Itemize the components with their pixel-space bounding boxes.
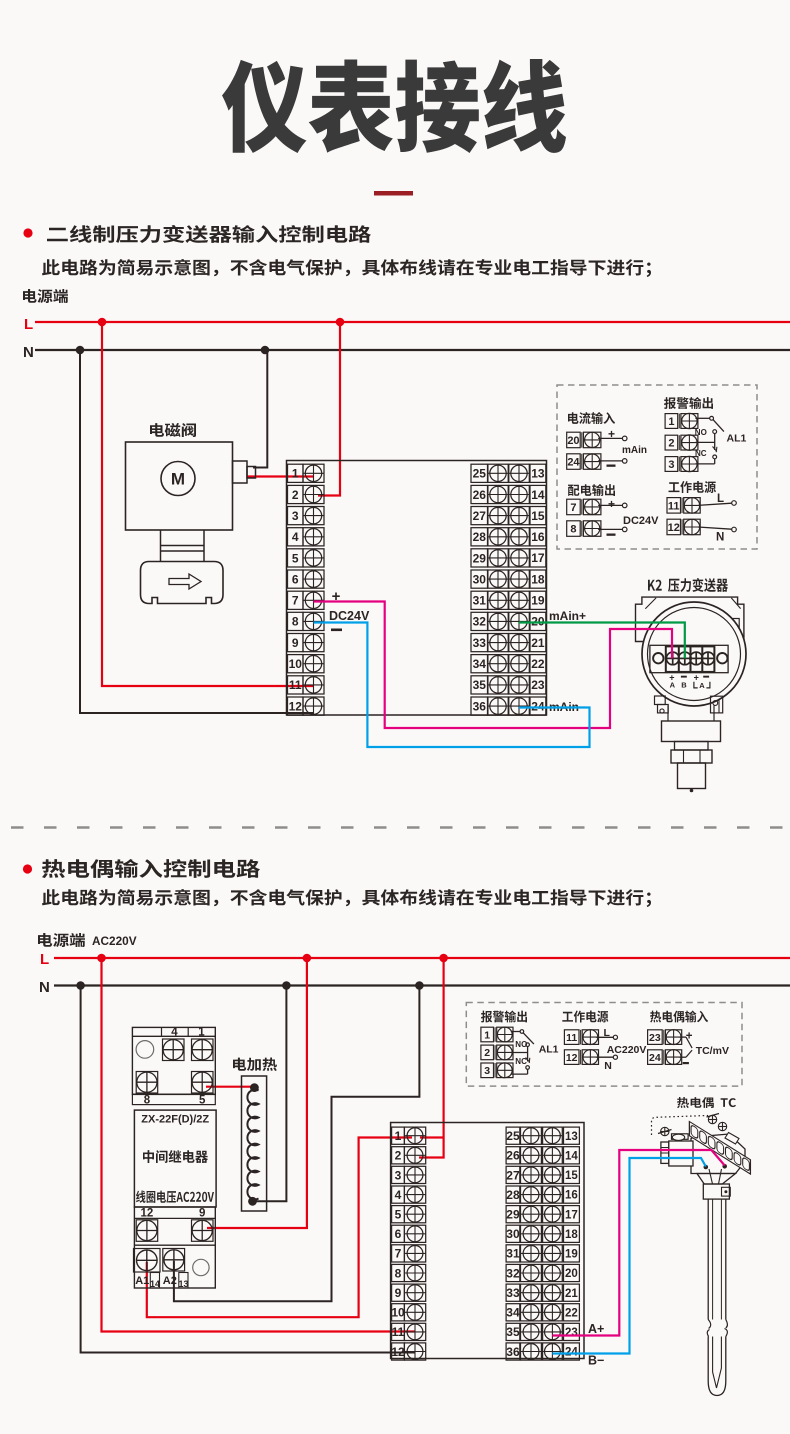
svg-text:L: L (24, 316, 33, 333)
svg-text:11: 11 (566, 1032, 577, 1044)
svg-text:19: 19 (531, 594, 545, 608)
svg-text:20: 20 (567, 435, 579, 447)
svg-text:36: 36 (506, 1345, 520, 1359)
svg-text:2: 2 (484, 1047, 490, 1059)
svg-text:AC220V: AC220V (607, 1044, 647, 1056)
svg-text:2: 2 (395, 1149, 402, 1163)
svg-text:15: 15 (565, 1170, 578, 1182)
svg-text:DC24V: DC24V (329, 609, 370, 623)
svg-text:14: 14 (531, 488, 545, 502)
svg-text:33: 33 (506, 1286, 520, 1300)
svg-text:8: 8 (570, 524, 576, 536)
svg-text:31: 31 (473, 594, 487, 608)
svg-text:29: 29 (506, 1208, 520, 1222)
svg-text:L: L (604, 1027, 611, 1039)
svg-text:34: 34 (506, 1306, 520, 1320)
svg-text:B: B (681, 680, 687, 689)
svg-text:4: 4 (292, 530, 299, 544)
svg-text:15: 15 (531, 509, 545, 523)
svg-text:N: N (23, 344, 34, 361)
svg-text:A: A (670, 680, 676, 689)
svg-text:16: 16 (531, 530, 545, 544)
svg-text:1: 1 (484, 1029, 490, 1041)
svg-text:N: N (39, 979, 50, 996)
svg-text:12: 12 (391, 1345, 405, 1359)
svg-text:30: 30 (473, 572, 487, 586)
svg-text:26: 26 (506, 1149, 520, 1163)
svg-text:9: 9 (292, 636, 299, 650)
svg-text:27: 27 (506, 1168, 520, 1182)
svg-text:8: 8 (395, 1266, 402, 1280)
svg-text:NC: NC (695, 449, 707, 458)
svg-text:2: 2 (668, 438, 674, 450)
svg-text:31: 31 (506, 1247, 520, 1261)
svg-text:12: 12 (566, 1052, 578, 1064)
svg-text:17: 17 (531, 551, 545, 565)
svg-text:28: 28 (473, 530, 487, 544)
svg-text:20: 20 (565, 1268, 578, 1280)
svg-text:5: 5 (199, 1095, 206, 1107)
svg-text:10: 10 (391, 1306, 405, 1320)
svg-text:4: 4 (171, 1026, 178, 1038)
svg-text:4: 4 (395, 1188, 402, 1202)
svg-text:3: 3 (292, 509, 299, 523)
svg-text:L: L (40, 951, 49, 968)
svg-text:28: 28 (506, 1188, 520, 1202)
svg-text:33: 33 (473, 636, 487, 650)
svg-text:21: 21 (565, 1288, 578, 1300)
svg-text:+: + (608, 427, 615, 441)
svg-text:12: 12 (668, 522, 680, 534)
svg-text:1: 1 (395, 1129, 402, 1143)
svg-text:24: 24 (567, 457, 580, 469)
svg-text:13: 13 (565, 1131, 578, 1143)
svg-text:19: 19 (565, 1249, 578, 1261)
svg-text:35: 35 (506, 1325, 520, 1339)
svg-text:5: 5 (395, 1208, 402, 1222)
svg-text:12: 12 (141, 1207, 154, 1219)
svg-text:7: 7 (395, 1247, 402, 1261)
svg-text:3: 3 (484, 1065, 490, 1077)
svg-text:AC220V: AC220V (92, 934, 137, 948)
svg-text:11: 11 (392, 1325, 405, 1339)
svg-text:NO: NO (695, 428, 707, 437)
svg-text:A: A (699, 681, 705, 690)
svg-text:L: L (717, 493, 724, 505)
svg-text:14: 14 (565, 1150, 578, 1162)
svg-text:9: 9 (199, 1207, 205, 1219)
svg-text:22: 22 (531, 657, 545, 671)
svg-text:mAin+: mAin+ (549, 609, 586, 623)
svg-text:AL1: AL1 (539, 1044, 559, 1056)
svg-text:6: 6 (395, 1227, 402, 1241)
svg-text:11: 11 (668, 500, 680, 512)
svg-text:26: 26 (473, 488, 487, 502)
svg-text:TC/mV: TC/mV (696, 1045, 729, 1057)
svg-text:1: 1 (292, 467, 299, 481)
svg-text:B−: B− (588, 1354, 604, 1368)
svg-text:NC: NC (515, 1057, 527, 1066)
svg-text:25: 25 (473, 467, 487, 481)
svg-text:24: 24 (649, 1052, 661, 1064)
svg-text:7: 7 (570, 502, 576, 514)
svg-text:5: 5 (292, 551, 299, 565)
svg-text:N: N (604, 1060, 612, 1072)
svg-text:ZX-22F(D)/2Z: ZX-22F(D)/2Z (141, 1114, 209, 1126)
svg-text:DC24V: DC24V (623, 515, 659, 527)
svg-text:+: + (686, 1030, 693, 1042)
svg-text:10: 10 (289, 657, 303, 671)
svg-text:3: 3 (668, 459, 674, 471)
svg-text:23: 23 (649, 1032, 661, 1044)
svg-text:8: 8 (144, 1095, 151, 1107)
svg-text:7: 7 (292, 594, 299, 608)
svg-text:1: 1 (198, 1026, 205, 1038)
svg-text:22: 22 (565, 1307, 578, 1319)
svg-text:25: 25 (506, 1129, 520, 1143)
svg-text:27: 27 (473, 509, 487, 523)
svg-text:32: 32 (473, 615, 487, 629)
svg-text:11: 11 (289, 678, 302, 692)
svg-text:M: M (171, 470, 185, 489)
svg-text:17: 17 (565, 1209, 578, 1221)
svg-text:A2: A2 (163, 1275, 177, 1287)
svg-text:1: 1 (668, 416, 674, 428)
svg-text:6: 6 (292, 572, 299, 586)
svg-text:34: 34 (473, 657, 487, 671)
svg-text:+: + (608, 497, 615, 511)
svg-text:23: 23 (531, 678, 545, 692)
svg-text:14: 14 (150, 1279, 160, 1289)
svg-text:24: 24 (531, 699, 545, 713)
svg-text:23: 23 (565, 1327, 578, 1339)
svg-text:21: 21 (531, 636, 545, 650)
svg-text:A1: A1 (135, 1275, 149, 1287)
svg-text:16: 16 (565, 1190, 578, 1202)
svg-text:29: 29 (473, 551, 487, 565)
svg-text:35: 35 (473, 678, 487, 692)
svg-text:13: 13 (531, 467, 545, 481)
svg-text:18: 18 (531, 572, 545, 586)
svg-text:3: 3 (395, 1168, 402, 1182)
svg-text:N: N (716, 532, 724, 544)
svg-text:8: 8 (292, 615, 299, 629)
svg-text:+: + (694, 673, 699, 683)
svg-text:12: 12 (289, 699, 303, 713)
svg-text:2: 2 (292, 488, 299, 502)
svg-text:13: 13 (178, 1279, 188, 1289)
svg-text:30: 30 (506, 1227, 520, 1241)
svg-text:A+: A+ (588, 1322, 604, 1336)
svg-text:9: 9 (395, 1286, 402, 1300)
svg-text:18: 18 (565, 1229, 578, 1241)
svg-text:36: 36 (473, 699, 487, 713)
svg-text:32: 32 (506, 1266, 520, 1280)
svg-text:AL1: AL1 (727, 433, 747, 445)
svg-text:mAin: mAin (622, 445, 647, 456)
